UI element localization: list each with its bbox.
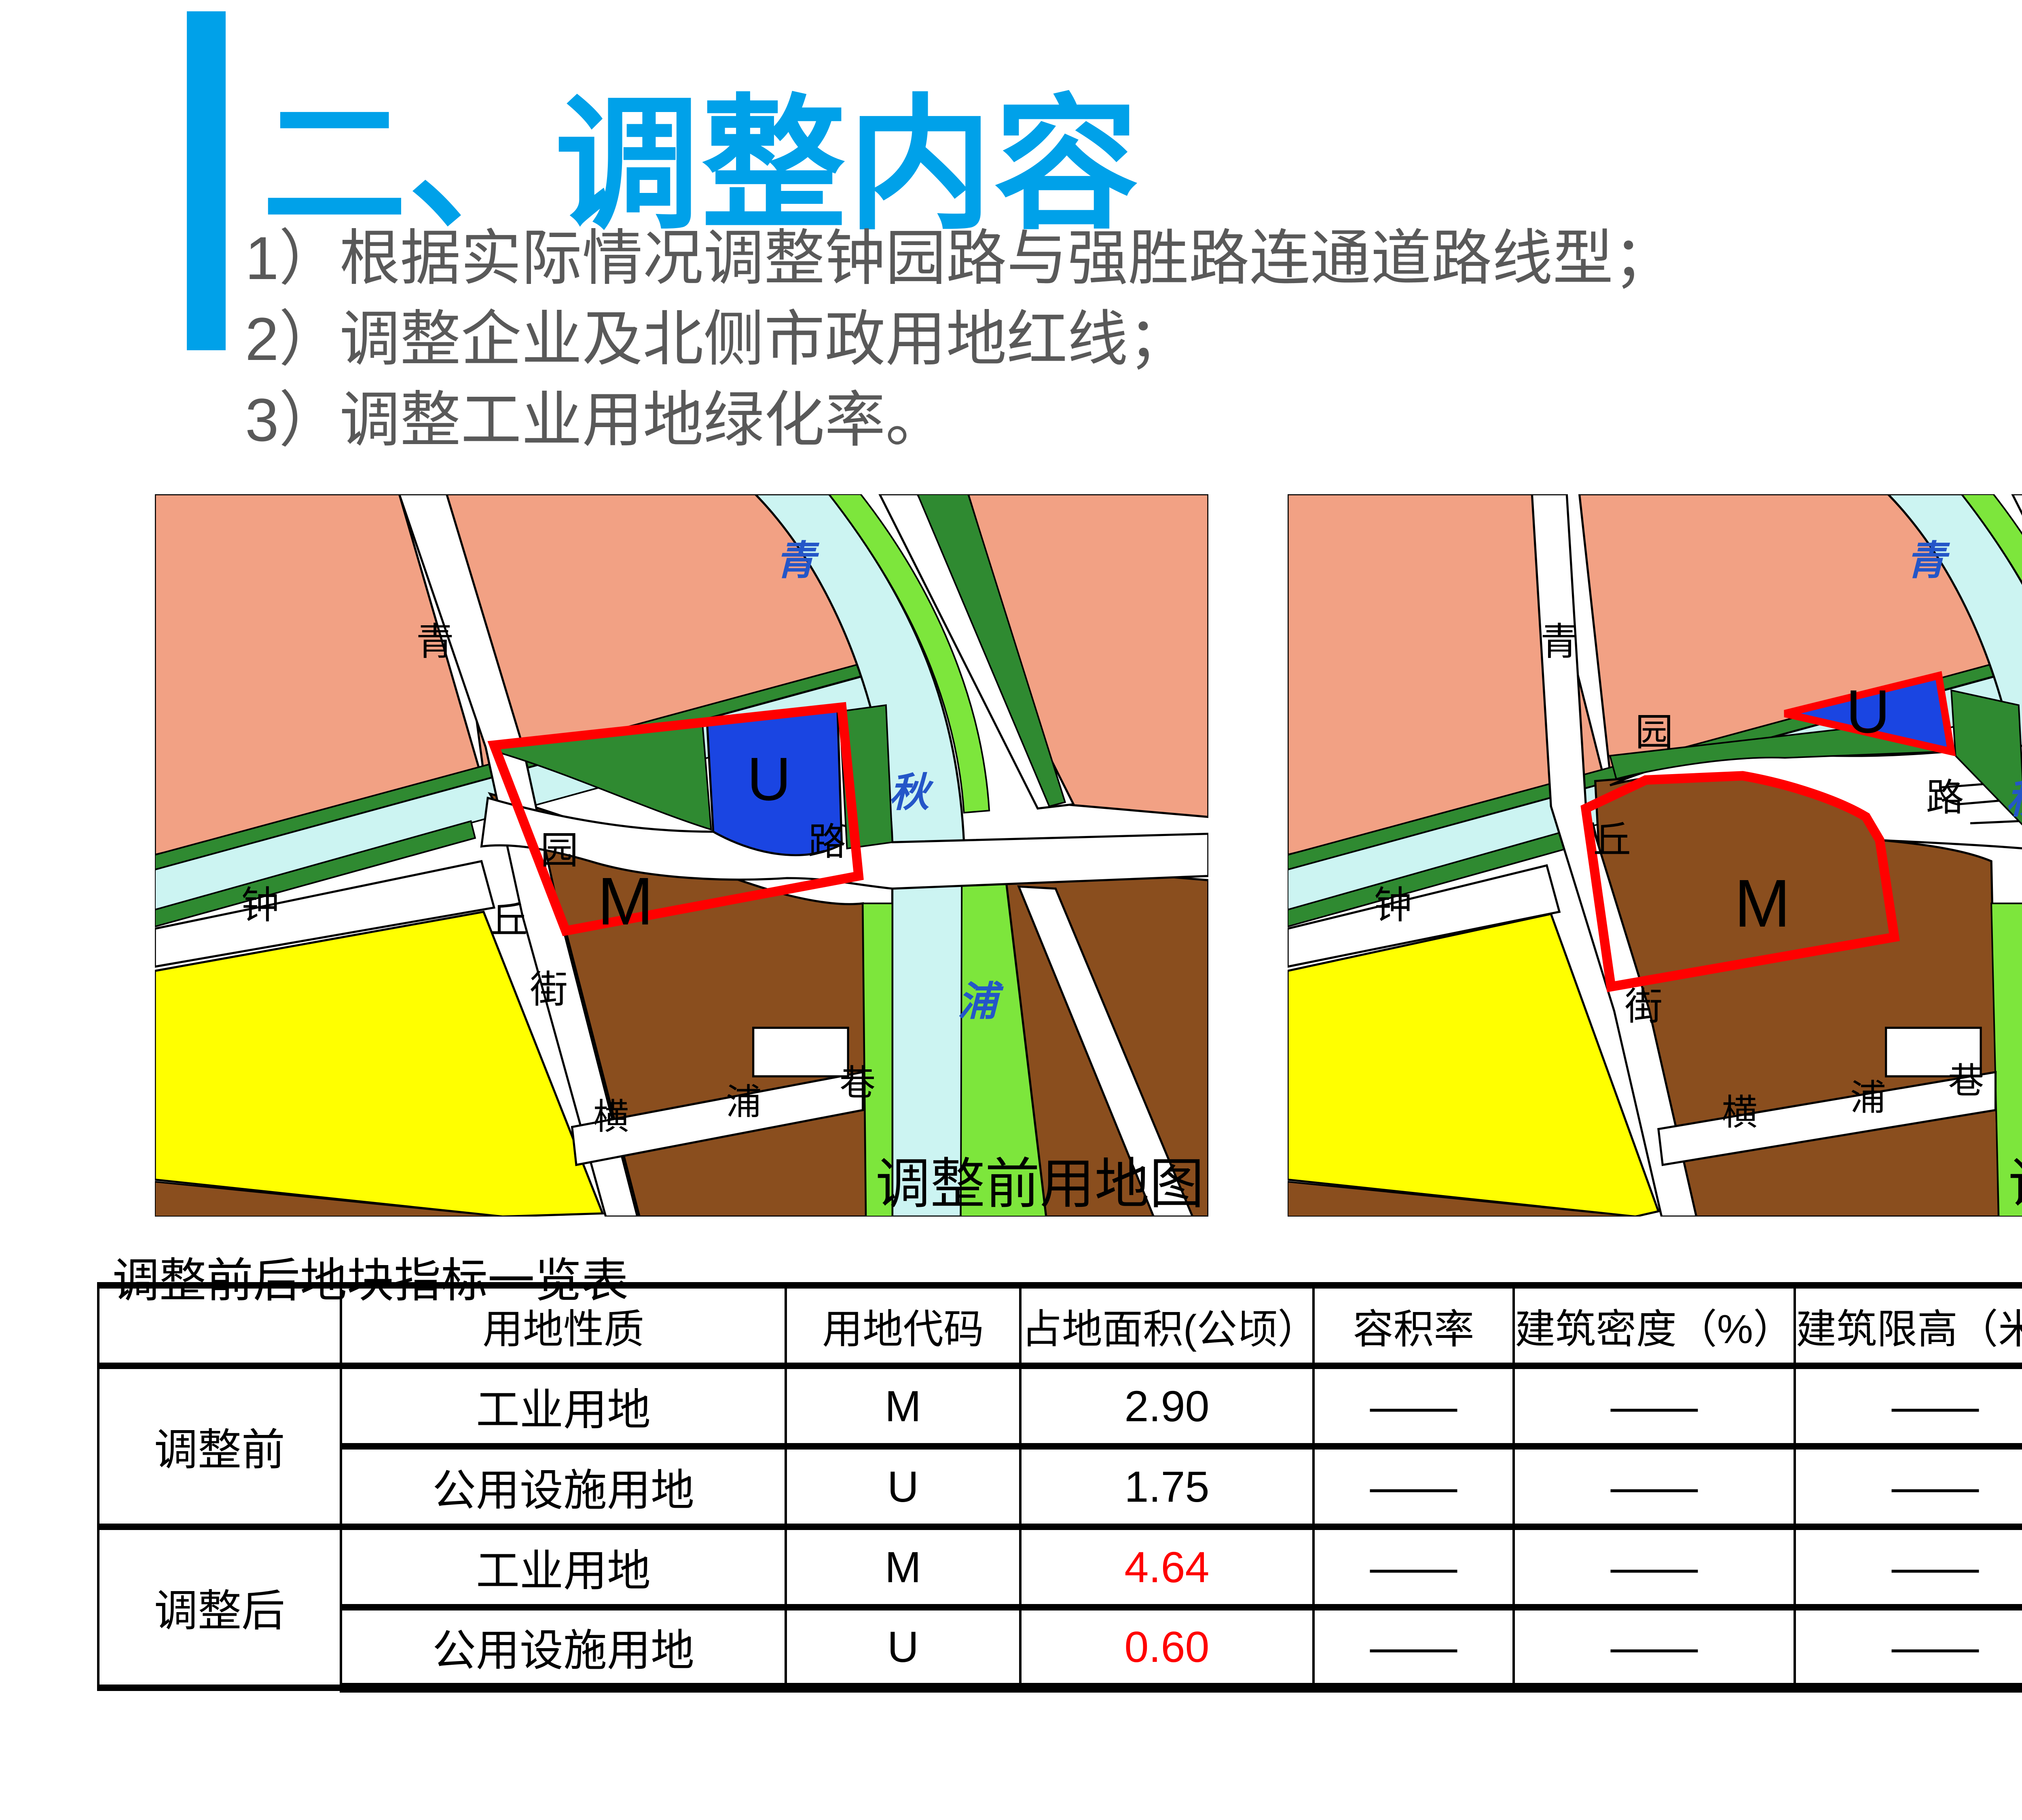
river-label: 浦 (958, 979, 1004, 1024)
road-label: 青 (416, 620, 454, 662)
indicator-table: 用地性质 用地代码 占地面积(公顷） 容积率 建筑密度（%） 建筑限高（米） 绿… (97, 1282, 2022, 1693)
road-label: 园 (1635, 711, 1673, 753)
title-accent-bar (187, 11, 226, 350)
cell-density: —— (1514, 1527, 1795, 1607)
cell-land-use: 公用设施用地 (341, 1607, 786, 1688)
header-cell-land-use: 用地性质 (341, 1285, 786, 1366)
map-caption: 调整前用地图 (876, 1153, 1204, 1215)
road-label: 街 (1625, 985, 1663, 1027)
group-label-after: 调整后 (98, 1527, 341, 1688)
road-label: 横 (1722, 1092, 1758, 1132)
cell-area-highlight: 0.60 (1020, 1607, 1313, 1688)
cell-far: —— (1313, 1527, 1514, 1607)
table-header-row: 用地性质 用地代码 占地面积(公顷） 容积率 建筑密度（%） 建筑限高（米） 绿… (98, 1285, 2022, 1366)
cell-density: —— (1514, 1366, 1795, 1446)
cell-height: —— (1795, 1607, 2022, 1688)
map-caption: 调整后用地图 (2008, 1153, 2022, 1215)
road-label: 青 (1540, 620, 1578, 662)
slide-page: 二、调整内容 1）根据实际情况调整钟园路与强胜路连通道路线型； 2）调整企业及北… (0, 0, 2022, 1820)
cell-height: —— (1795, 1527, 2022, 1607)
header-cell-far: 容积率 (1313, 1285, 1514, 1366)
cell-far: —— (1313, 1607, 1514, 1688)
cell-height: —— (1795, 1366, 2022, 1446)
land-use-map-before: 青 钟 园 路 丘 街 横 浦 巷 青 秋 浦 M U 调整前用地图 (155, 494, 1208, 1217)
zone-label-u: U (747, 745, 791, 813)
road-label: 巷 (840, 1063, 876, 1103)
cell-density: —— (1514, 1446, 1795, 1527)
zone-label-u: U (1846, 677, 1890, 746)
bullet-item: 2）调整企业及北侧市政用地红线； (245, 298, 1674, 379)
road-label: 钟 (241, 884, 279, 926)
road-label: 丘 (490, 899, 528, 941)
river-label: 青 (775, 538, 819, 583)
road-label: 浦 (1850, 1078, 1886, 1118)
cell-far: —— (1313, 1366, 1514, 1446)
cell-area-highlight: 4.64 (1020, 1527, 1313, 1607)
cell-code: M (786, 1527, 1020, 1607)
bullet-item: 1）根据实际情况调整钟园路与强胜路连通道路线型； (245, 218, 1674, 298)
header-cell-group (98, 1285, 341, 1366)
table-row: 调整前 工业用地 M 2.90 —— —— —— —— (98, 1366, 2022, 1446)
road-notch (753, 1028, 848, 1076)
header-cell-density: 建筑密度（%） (1514, 1285, 1795, 1366)
river-label: 秋 (889, 770, 934, 815)
road-label: 街 (530, 968, 568, 1011)
bullet-list: 1）根据实际情况调整钟园路与强胜路连通道路线型； 2）调整企业及北侧市政用地红线… (245, 218, 1674, 460)
land-use-map-after: 青 钟 园 路 丘 街 横 浦 巷 青 秋 浦 M U 调整后用地图 (1288, 494, 2022, 1217)
cell-land-use: 工业用地 (341, 1527, 786, 1607)
cell-code: U (786, 1607, 1020, 1688)
cell-far: —— (1313, 1446, 1514, 1527)
cell-density: —— (1514, 1607, 1795, 1688)
cell-code: M (786, 1366, 1020, 1446)
road-label: 巷 (1948, 1061, 1984, 1101)
road-label: 园 (540, 829, 578, 872)
header-cell-code: 用地代码 (786, 1285, 1020, 1366)
cell-land-use: 工业用地 (341, 1366, 786, 1446)
table-row: 调整后 工业用地 M 4.64 —— —— —— 15% (98, 1527, 2022, 1607)
road-label: 浦 (726, 1082, 762, 1122)
road-label: 路 (808, 821, 846, 863)
river-label: 秋 (2006, 776, 2022, 821)
zone-label-m: M (1734, 866, 1791, 941)
road-label: 钟 (1374, 884, 1412, 926)
header-cell-area: 占地面积(公顷） (1020, 1285, 1313, 1366)
cell-area: 2.90 (1020, 1366, 1313, 1446)
cell-height: —— (1795, 1446, 2022, 1527)
road-label: 丘 (1593, 818, 1631, 861)
cell-code: U (786, 1446, 1020, 1527)
cell-area: 1.75 (1020, 1446, 1313, 1527)
zone-label-m: M (597, 864, 654, 939)
bullet-item: 3）调整工业用地绿化率。 (245, 379, 1674, 460)
road-label: 横 (593, 1097, 629, 1137)
header-cell-height: 建筑限高（米） (1795, 1285, 2022, 1366)
table-row: 公用设施用地 U 0.60 —— —— —— —— (98, 1607, 2022, 1688)
group-label-before: 调整前 (98, 1366, 341, 1527)
road-label: 路 (1926, 776, 1964, 819)
indicator-table-wrap: 用地性质 用地代码 占地面积(公顷） 容积率 建筑密度（%） 建筑限高（米） 绿… (97, 1282, 2022, 1685)
table-row: 公用设施用地 U 1.75 —— —— —— —— (98, 1446, 2022, 1527)
cell-land-use: 公用设施用地 (341, 1446, 786, 1527)
river-label: 青 (1906, 538, 1950, 583)
